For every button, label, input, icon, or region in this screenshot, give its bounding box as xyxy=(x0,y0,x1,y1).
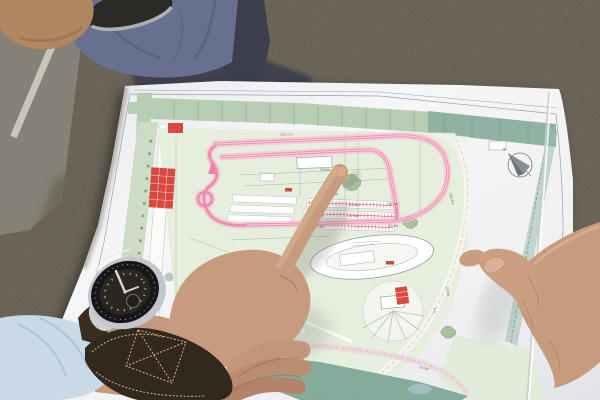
photo-scene: N 382.0m 73.0m 23.5m 27.5m 25.5m 41.5m 3… xyxy=(0,0,600,400)
pit-building xyxy=(297,156,332,168)
map-label: 37.5m xyxy=(349,214,359,218)
map-label: 382.0m xyxy=(280,132,294,137)
map-label: 73.0m xyxy=(320,168,330,172)
building-large-red xyxy=(149,167,176,209)
map-label: 27.5m xyxy=(349,203,359,207)
map-label: 25.5m xyxy=(388,224,398,228)
map-label: 25.5m xyxy=(388,202,398,206)
watch-hand-center xyxy=(123,290,126,293)
pond-2 xyxy=(408,384,432,394)
building-red-bottom xyxy=(395,286,409,305)
watch-crown xyxy=(165,273,174,282)
red-marker-1 xyxy=(285,188,292,192)
building-small-red xyxy=(168,123,183,133)
map-label: 9.5 xyxy=(432,308,437,314)
red-marker-2 xyxy=(386,261,394,265)
photo-canvas: N 382.0m 73.0m 23.5m 27.5m 25.5m 41.5m 3… xyxy=(0,0,600,400)
pit-rows xyxy=(228,195,297,224)
subdial xyxy=(127,295,140,308)
